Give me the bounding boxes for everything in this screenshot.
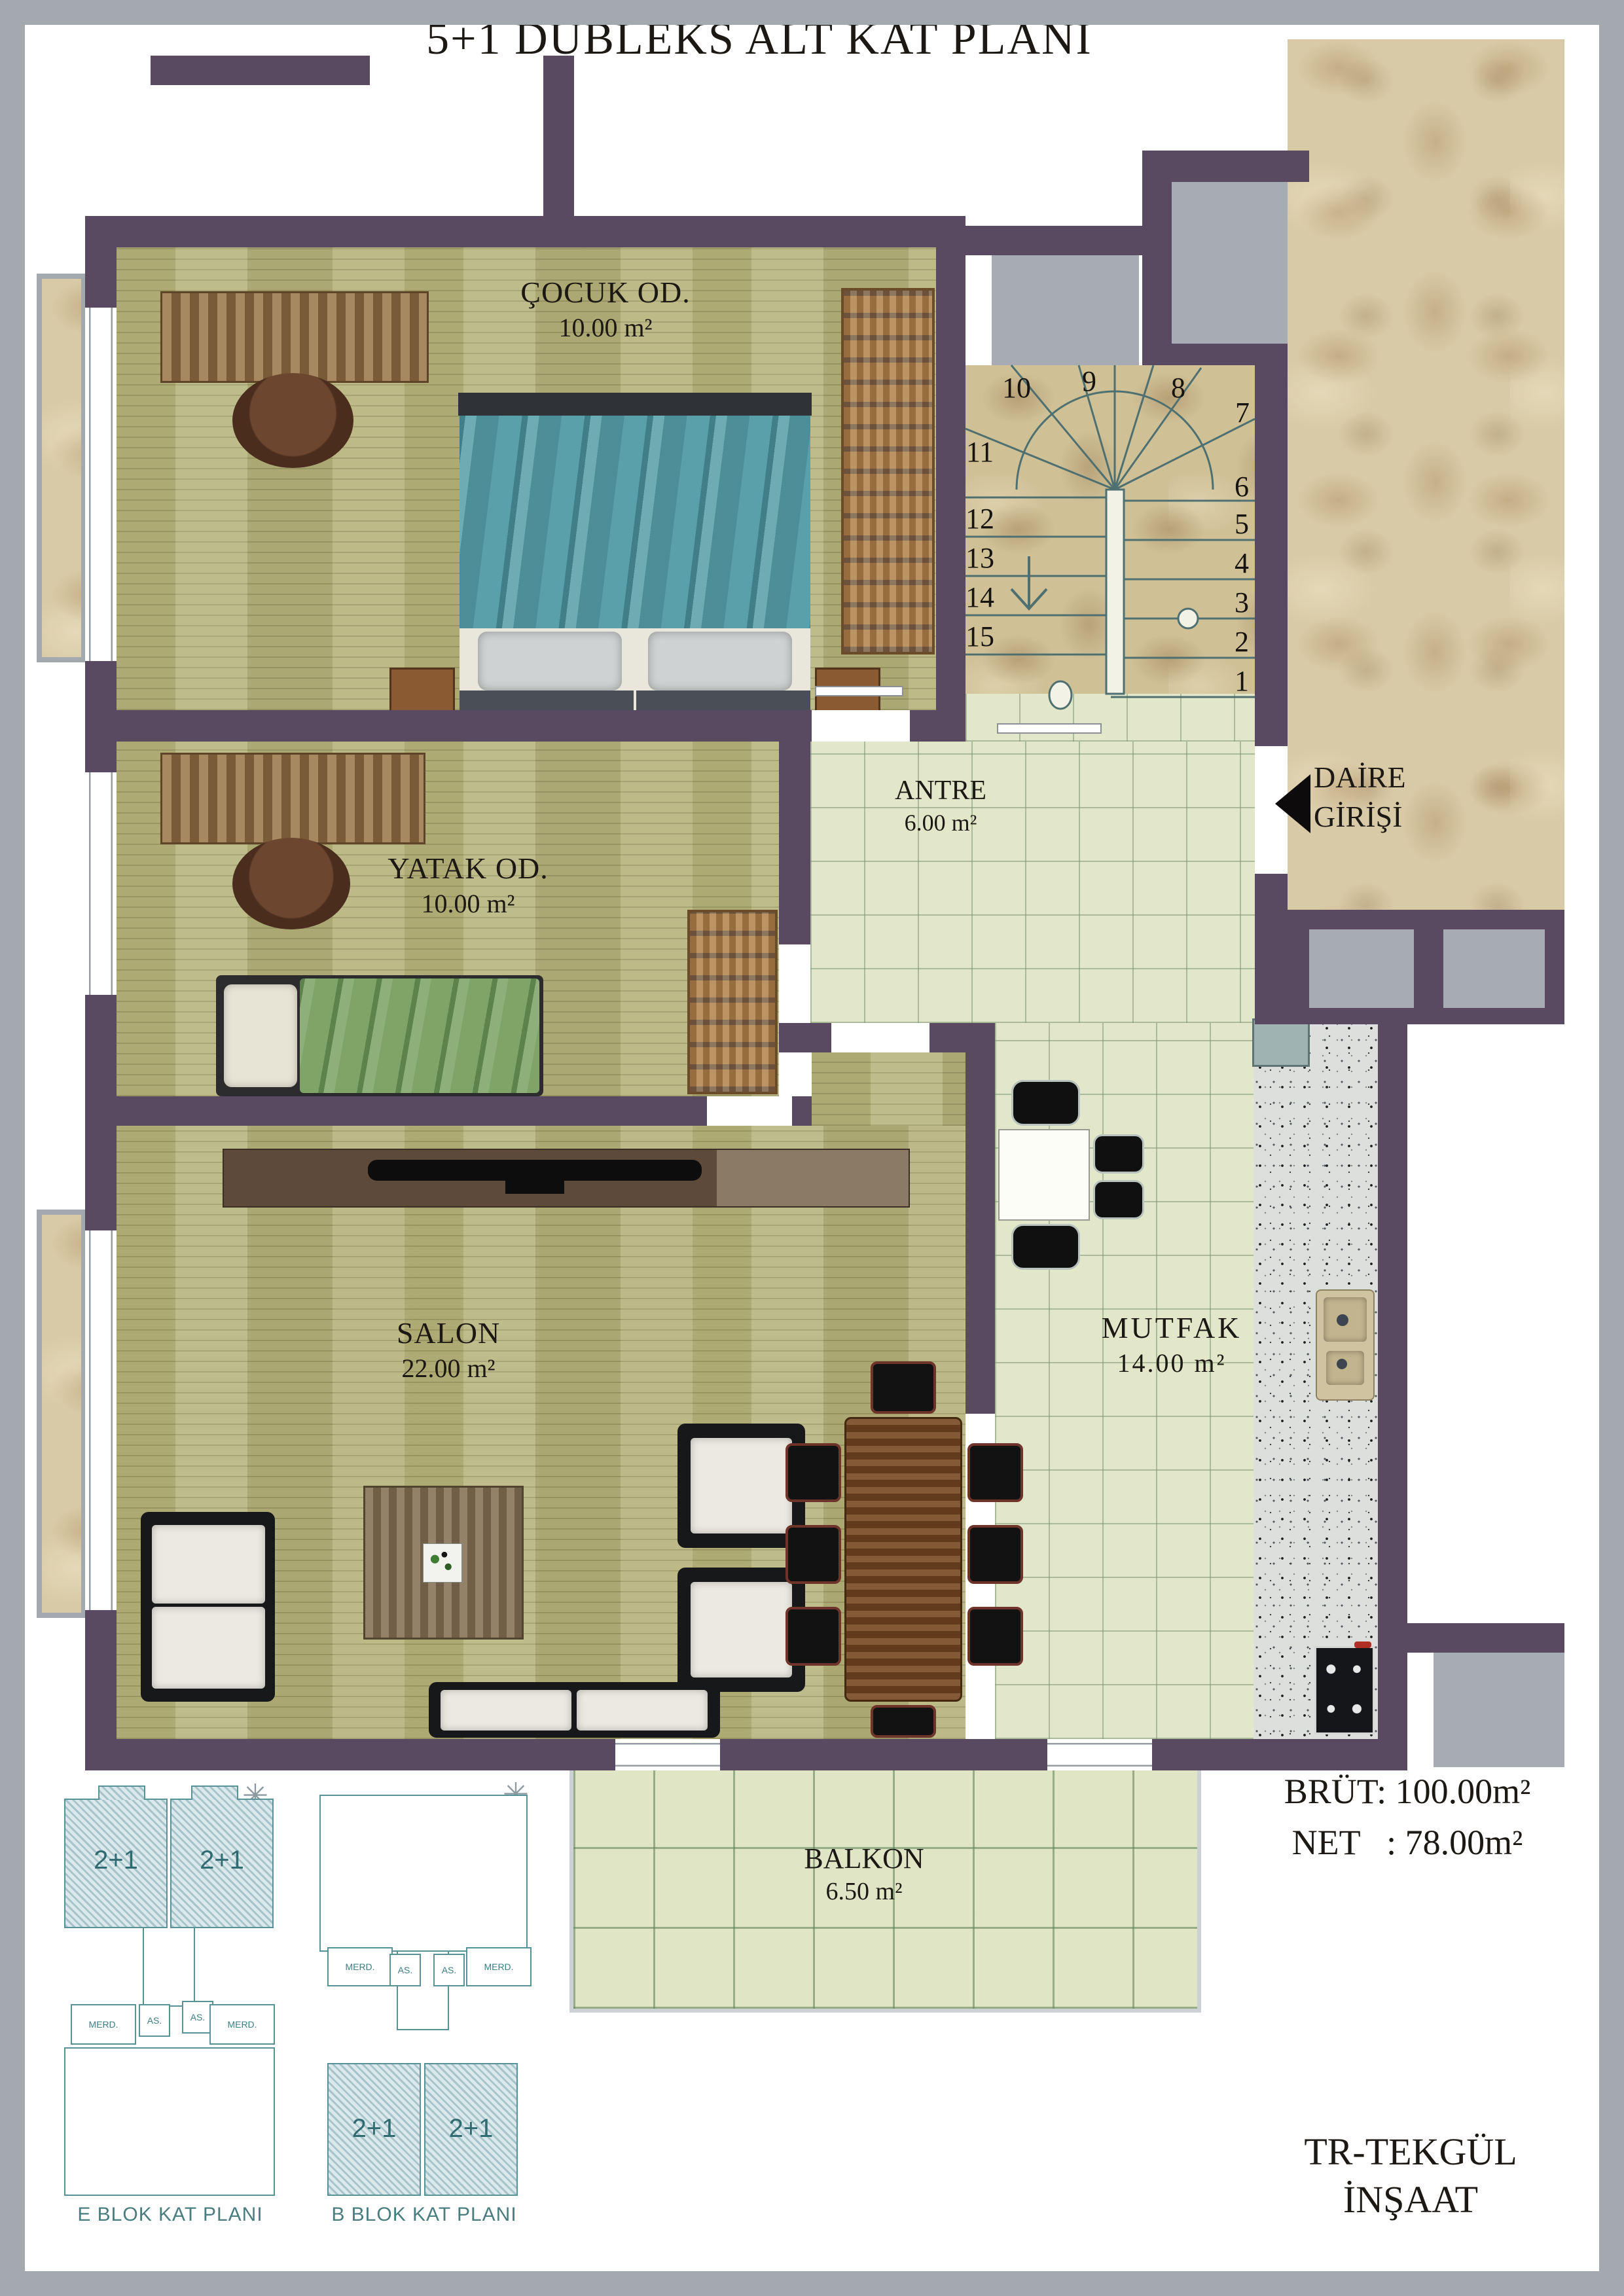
e-blok-merd-right: MERD.: [209, 2004, 275, 2045]
page-title: 5+1 DUBLEKS ALT KAT PLANI: [196, 10, 1322, 69]
window-yatak-left: [85, 772, 117, 995]
dining-chair-l3: [785, 1607, 841, 1666]
stair-num-8: 8: [1171, 372, 1185, 404]
door-balkon-salon: [615, 1739, 720, 1770]
cocuk-bed-headboard: [458, 393, 812, 416]
left-balcony-top: [37, 274, 86, 662]
stair-num-10: 10: [1002, 372, 1031, 404]
stair-num-15: 15: [965, 620, 994, 653]
dining-chair-r1: [967, 1443, 1023, 1502]
wall-bottom-a: [85, 1739, 615, 1770]
b-blok-merd-left: MERD.: [327, 1947, 393, 1986]
label-salon-name: SALON: [262, 1314, 635, 1352]
entry-label-line1: DAİRE: [1314, 758, 1510, 797]
dining-chair-l1: [785, 1443, 841, 1502]
wall-entry-top-h: [1172, 151, 1309, 182]
kitchen-chair-top: [1011, 1080, 1080, 1126]
armchair-1-cushion: [691, 1438, 792, 1534]
salon-sofa-bottom: [429, 1682, 720, 1738]
e-blok-lower-outline: [64, 2047, 275, 2196]
b-blok-merd-right: MERD.: [466, 1947, 532, 1986]
stair-num-3: 3: [1235, 586, 1249, 619]
dining-chair-bottom: [871, 1705, 936, 1738]
sofa-bottom-cushion-1: [441, 1690, 571, 1731]
kitchen-sink: [1316, 1289, 1375, 1401]
yatak-bed: [216, 975, 543, 1096]
left-balcony-top-floor: [42, 279, 81, 657]
stair-num-2: 2: [1235, 626, 1249, 658]
label-salon: SALON 22.00 m²: [262, 1314, 635, 1385]
e-blok-plan: 2+1 2+1 MERD. AS. AS. MERD. ✳ E BLOK KAT…: [59, 1777, 281, 2235]
sofa-left-cushion-1: [152, 1525, 265, 1604]
kitchen-chair-bottom: [1011, 1224, 1080, 1270]
shaft-right: [1443, 929, 1545, 1008]
dining-chair-top: [871, 1361, 936, 1414]
window-cocuk-left: [85, 308, 117, 661]
cocuk-bed-pillow-left: [478, 632, 622, 691]
b-blok-label: B BLOK KAT PLANI: [313, 2204, 535, 2226]
entry-label-line2: GİRİŞİ: [1314, 797, 1510, 836]
label-antre-name: ANTRE: [810, 774, 1072, 808]
stair-num-12: 12: [965, 503, 994, 535]
kitchen-chair-r2: [1093, 1180, 1144, 1219]
door-balkon-mutfak: [1047, 1739, 1152, 1770]
entry-arrow-icon: [1275, 774, 1310, 833]
b-blok-as-right: AS.: [433, 1954, 465, 1986]
stair-num-6: 6: [1235, 471, 1249, 503]
label-mutfak: MUTFAK 14.00 m²: [1041, 1309, 1303, 1380]
stove: [1314, 1646, 1375, 1734]
b-blok-unit1-label: 2+1: [327, 2114, 421, 2144]
left-balcony-bottom: [37, 1210, 86, 1618]
void-bottom-right: [1434, 1653, 1564, 1767]
label-yatak-name: YATAK OD.: [281, 850, 655, 888]
wall-yatak-bottom-b: [792, 1096, 812, 1126]
label-mutfak-area: 14.00 m²: [1041, 1347, 1303, 1380]
kitchen-table: [998, 1129, 1090, 1221]
label-cocuk-area: 10.00 m²: [419, 312, 792, 344]
stair-num-14: 14: [965, 581, 994, 613]
entry-door-leaf: [997, 723, 1102, 734]
label-balkon-name: BALKON: [733, 1840, 995, 1876]
entry-label: DAİRE GİRİŞİ: [1314, 758, 1510, 836]
label-cocuk: ÇOCUK OD. 10.00 m²: [419, 274, 792, 344]
company-name: TR-TEKGÜL İNŞAAT: [1273, 2128, 1548, 2223]
e-blok-as-right: AS.: [182, 2001, 213, 2034]
e-blok-merd-left: MERD.: [71, 2004, 136, 2045]
label-mutfak-name: MUTFAK: [1041, 1309, 1303, 1347]
area-totals: BRÜT: 100.00m² NET : 78.00m²: [1267, 1766, 1548, 1869]
sofa-bottom-cushion-2: [577, 1690, 708, 1731]
tv-screen: [368, 1160, 702, 1181]
stair-num-4: 4: [1235, 547, 1249, 579]
e-blok-core: [143, 1928, 195, 2007]
cocuk-bed-blanket: [460, 416, 810, 628]
label-antre: ANTRE 6.00 m²: [810, 774, 1072, 838]
company-line1: TR-TEKGÜL: [1273, 2128, 1548, 2176]
sink-faucet: [1337, 1314, 1348, 1326]
e-blok-unit2-label: 2+1: [170, 1846, 274, 1875]
cocuk-bed-pillow-right: [648, 632, 792, 691]
wall-cocuk-bottom-a: [117, 710, 812, 742]
armchair-2-cushion: [691, 1582, 792, 1677]
salon-floor-upper-right: [812, 1052, 965, 1126]
wall-mutfak-right: [1378, 1024, 1407, 1770]
tv-unit: [223, 1149, 910, 1208]
salon-sofa-left: [141, 1512, 275, 1702]
yatak-bed-pillow: [224, 984, 297, 1087]
brut-value: BRÜT: 100.00m²: [1267, 1766, 1548, 1817]
door-yatak-gap: [779, 944, 810, 1023]
dining-table: [844, 1417, 962, 1702]
label-balkon-area: 6.50 m²: [733, 1876, 995, 1908]
door-cocuk-leaf: [815, 686, 903, 696]
dining-chair-r3: [967, 1607, 1023, 1666]
cocuk-bed: [458, 393, 812, 720]
wall-bottom-b: [720, 1739, 1047, 1770]
stair-num-7: 7: [1235, 397, 1250, 429]
yatak-wardrobe: [687, 910, 778, 1094]
wall-top-stub-v: [543, 56, 574, 216]
kitchen-chair-r1: [1093, 1134, 1144, 1174]
e-blok-unit1-label: 2+1: [64, 1846, 168, 1875]
dining-chair-l2: [785, 1525, 841, 1584]
wall-salon-mutfak: [965, 1052, 995, 1414]
door-cocuk-gap: [812, 710, 910, 742]
label-salon-area: 22.00 m²: [262, 1352, 635, 1385]
label-yatak: YATAK OD. 10.00 m²: [281, 850, 655, 920]
left-balcony-bottom-floor: [42, 1215, 81, 1613]
coffee-table: [363, 1486, 524, 1640]
label-yatak-area: 10.00 m²: [281, 888, 655, 920]
wall-stair-top: [936, 226, 1142, 255]
yatak-bed-blanket: [300, 978, 539, 1093]
stair-num-13: 13: [965, 542, 994, 574]
coffee-table-plant: [423, 1543, 462, 1583]
e-blok-as-left: AS.: [139, 2004, 170, 2037]
company-line2: İNŞAAT: [1273, 2176, 1548, 2224]
label-cocuk-name: ÇOCUK OD.: [419, 274, 792, 312]
floorplan-page: { "title": "5+1 DUBLEKS ALT KAT PLANI", …: [0, 0, 1624, 2296]
void-above-stairs-right: [1172, 182, 1288, 344]
e-blok-tab-left: [98, 1785, 145, 1800]
door-salon-gap: [831, 1023, 929, 1052]
stair-num-11: 11: [966, 436, 994, 468]
wall-bottom-right: [1407, 1623, 1564, 1653]
wall-antre-salon-a: [779, 1023, 831, 1052]
sofa-left-cushion-2: [152, 1607, 265, 1689]
b-blok-unit2-label: 2+1: [424, 2114, 518, 2144]
cocuk-wardrobe: [841, 288, 935, 655]
dining-chair-r2: [967, 1525, 1023, 1584]
b-blok-upper-outline: [319, 1795, 528, 1952]
staircase: 1 2 3 4 5 6 7 8 9 10 11 12 13 14 15: [933, 327, 1290, 720]
shaft-left: [1309, 929, 1414, 1008]
stove-handle: [1354, 1641, 1371, 1648]
kitchen-upper-cabinet: [1252, 1018, 1310, 1067]
b-blok-plan: MERD. AS. AS. MERD. 2+1 2+1 ✳ B BLOK KAT…: [313, 1777, 535, 2235]
e-blok-tab-right: [191, 1785, 238, 1800]
cocuk-desk-chair: [232, 373, 353, 468]
label-balkon: BALKON 6.50 m²: [733, 1840, 995, 1908]
e-blok-label: E BLOK KAT PLANI: [59, 2204, 281, 2226]
yatak-desk: [160, 753, 425, 844]
cocuk-desk: [160, 291, 429, 383]
wall-cocuk-top: [85, 216, 965, 247]
stair-num-5: 5: [1235, 508, 1249, 540]
wall-antre-salon-b: [929, 1023, 995, 1052]
net-value: NET : 78.00m²: [1267, 1817, 1548, 1868]
b-blok-as-left: AS.: [389, 1954, 421, 1986]
label-antre-area: 6.00 m²: [810, 808, 1072, 838]
wall-yatak-right: [779, 742, 810, 944]
wall-yatak-bottom-a: [85, 1096, 707, 1126]
wall-right-mid: [1255, 874, 1288, 1024]
stair-num-1: 1: [1235, 665, 1249, 697]
tv-stand: [505, 1179, 564, 1194]
sink-faucet-2: [1337, 1359, 1347, 1369]
window-salon-left: [85, 1230, 117, 1610]
stair-num-9: 9: [1082, 365, 1096, 397]
